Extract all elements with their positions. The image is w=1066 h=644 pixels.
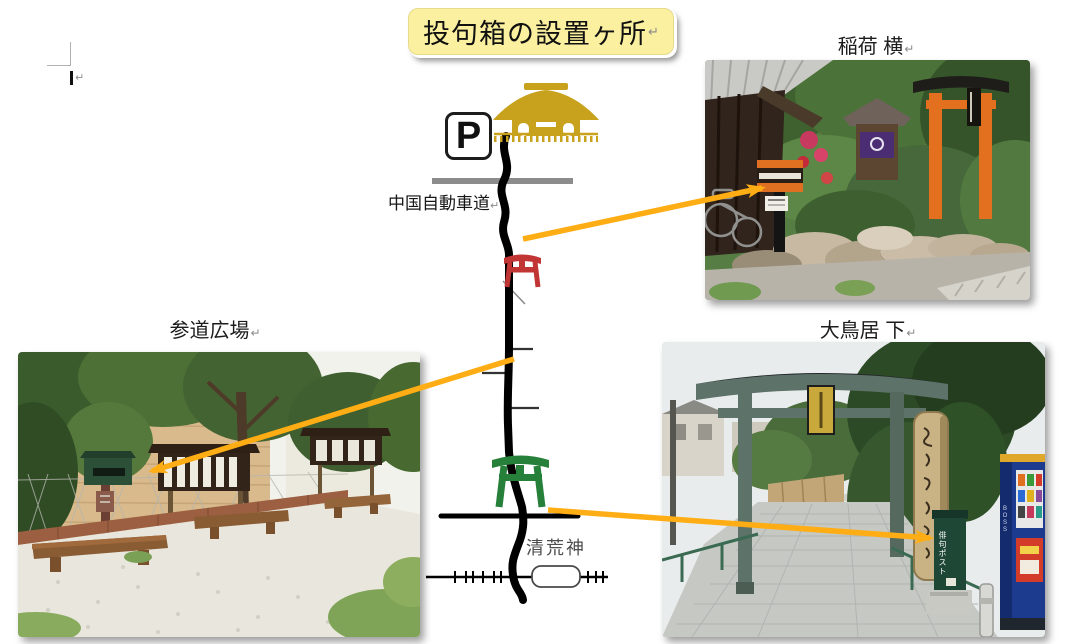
vending-machine-brand: BOSS — [1002, 492, 1008, 548]
photo-sando-hiroba[interactable] — [18, 352, 420, 637]
haiku-post-box-label: 俳句ポスト — [938, 520, 946, 586]
parking-sign-icon: P — [445, 112, 492, 160]
expressway-label-text: 中国自動車道 — [388, 194, 490, 213]
caption-inari-yoko: 稲荷 横↵ — [806, 30, 946, 59]
return-mark: ↵ — [904, 42, 914, 56]
text-cursor[interactable] — [70, 71, 73, 85]
return-mark: ↵ — [906, 326, 916, 340]
caption-otorii-shita: 大鳥居 下↵ — [798, 314, 938, 343]
station-label: 清荒神 — [526, 534, 586, 560]
otorii-photo-image — [662, 342, 1045, 637]
side-streets — [482, 349, 539, 408]
page-title: 投句箱の設置ヶ所 — [423, 12, 647, 51]
caption-sando-text: 参道広場 — [169, 320, 249, 342]
expressway-label: 中国自動車道↵ — [388, 189, 499, 214]
temple-icon — [493, 83, 599, 139]
caption-sando-hiroba: 参道広場↵ — [148, 314, 282, 343]
return-mark: ↵ — [250, 326, 260, 340]
inari-photo-image — [705, 60, 1030, 300]
torii-icon-red — [504, 255, 541, 288]
caption-inari-text: 稲荷 横 — [838, 36, 904, 58]
approach-road — [501, 136, 523, 600]
return-mark: ↵ — [490, 200, 499, 212]
return-mark: ↵ — [648, 24, 659, 40]
photo-inari-yoko[interactable] — [705, 60, 1030, 300]
parking-sign-letter: P — [456, 115, 481, 157]
torii-icon-green — [492, 456, 549, 508]
sando-photo-image — [18, 352, 420, 637]
station-box — [532, 566, 580, 587]
railway-line — [426, 571, 608, 583]
caption-otorii-text: 大鳥居 下 — [820, 320, 906, 342]
paragraph-mark: ↵ — [75, 71, 84, 84]
document-page: ↵ — [0, 0, 1066, 644]
pointer-line — [503, 281, 525, 304]
page-margin-corner-mark — [47, 42, 71, 66]
photo-otorii-shita[interactable]: 俳句ポスト BOSS — [662, 342, 1045, 637]
title-box[interactable]: 投句箱の設置ヶ所 ↵ — [408, 8, 674, 55]
